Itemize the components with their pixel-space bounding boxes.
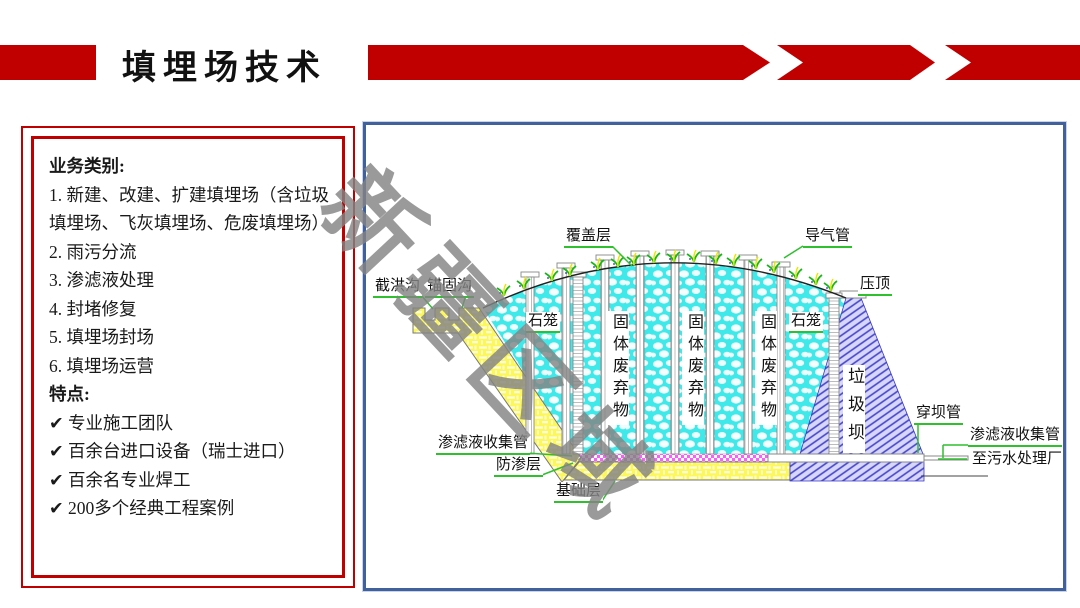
foundation-slab (564, 462, 790, 480)
business-item: 1. 新建、改建、扩建填埋场（含垃圾填埋场、飞灰填埋场、危废填埋场） (49, 181, 332, 238)
label-gas-vent-pipe: 导气管 (803, 227, 852, 248)
business-item: 5. 填埋场封场 (49, 323, 332, 352)
dam-crossing-pipe-shape (768, 454, 924, 462)
label-dam-crossing-pipe: 穿坝管 (914, 404, 963, 425)
label-solid-waste: 固体废弃物 (682, 311, 704, 425)
landfill-diagram-panel: 覆盖层 导气管 压顶 截洪沟 锚固沟 石笼 (363, 122, 1066, 591)
label-anchor-ditch: 锚固沟 (425, 277, 474, 298)
chevron-arrow-icon (777, 45, 935, 80)
business-panel: 业务类别: 1. 新建、改建、扩建填埋场（含垃圾填埋场、飞灰填埋场、危废填埋场）… (21, 126, 355, 588)
business-item: 4. 封堵修复 (49, 295, 332, 324)
business-item: 6. 填埋场运营 (49, 352, 332, 381)
label-solid-waste: 固体废弃物 (607, 311, 629, 425)
label-stone-cage-left: 石笼 (526, 312, 560, 333)
label-leachate-pipe-left: 渗滤液收集管 (436, 434, 530, 455)
arrow-bar-segment (368, 45, 770, 80)
label-flood-interception-ditch: 截洪沟 (373, 277, 422, 298)
chevron-arrow-icon (945, 45, 1080, 80)
business-item: 3. 渗滤液处理 (49, 266, 332, 295)
business-heading: 业务类别: (49, 152, 332, 181)
impermeable-layer-strip (576, 454, 800, 462)
label-impermeable-layer: 防渗层 (494, 456, 543, 477)
label-to-sewage-plant: 至污水处理厂 (972, 450, 1062, 468)
business-panel-inner: 业务类别: 1. 新建、改建、扩建填埋场（含垃圾填埋场、飞灰填埋场、危废填埋场）… (31, 136, 345, 578)
header-arrow-bar (0, 0, 1080, 90)
business-item: 2. 雨污分流 (49, 238, 332, 267)
label-capping: 压顶 (858, 275, 892, 296)
label-foundation-layer: 基础层 (554, 482, 603, 503)
feature-item: ✔ 百余名专业焊工 (49, 466, 332, 495)
label-garbage-dam: 垃圾坝 (843, 365, 865, 453)
label-solid-waste: 固体废弃物 (755, 311, 777, 425)
features-heading: 特点: (49, 380, 332, 409)
label-cover-layer: 覆盖层 (564, 227, 613, 248)
label-stone-cage-right: 石笼 (789, 312, 823, 333)
feature-item: ✔ 百余台进口设备（瑞士进口） (49, 437, 332, 466)
dam-base-slab (790, 462, 924, 481)
label-leachate-pipe-right: 渗滤液收集管 (968, 426, 1062, 447)
feature-item: ✔ 200多个经典工程案例 (49, 494, 332, 523)
feature-item: ✔ 专业施工团队 (49, 409, 332, 438)
slide: 填埋场技术 业务类别: 1. 新建、改建、扩建填埋场（含垃圾填埋场、飞灰填埋场、… (0, 0, 1080, 608)
landfill-cross-section: 覆盖层 导气管 压顶 截洪沟 锚固沟 石笼 (366, 125, 1063, 588)
landfill-diagram-drawing (366, 125, 1063, 588)
